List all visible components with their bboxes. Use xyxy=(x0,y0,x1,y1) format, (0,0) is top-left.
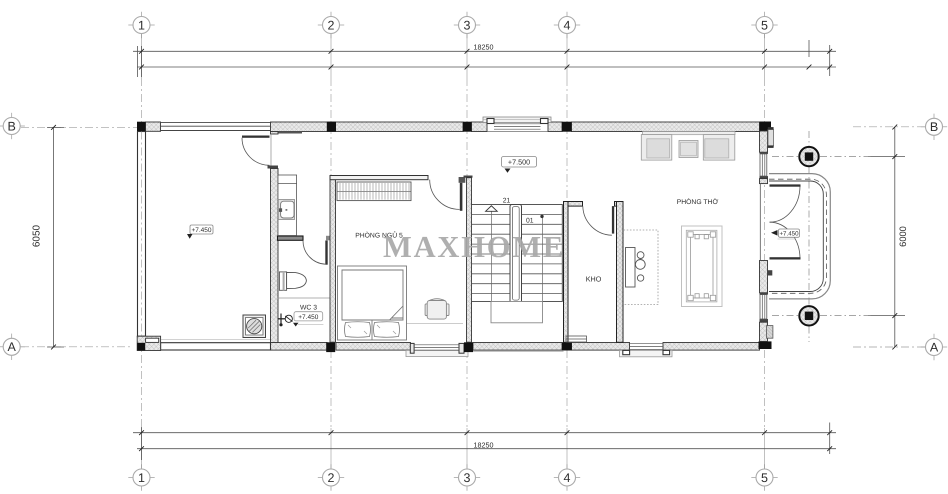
svg-text:B: B xyxy=(8,119,16,133)
svg-text:5: 5 xyxy=(761,471,768,485)
svg-text:21: 21 xyxy=(503,197,511,204)
svg-text:1: 1 xyxy=(138,471,145,485)
svg-text:+7.500: +7.500 xyxy=(508,158,530,167)
svg-text:5: 5 xyxy=(761,18,768,32)
svg-text:PHÒNG THỜ: PHÒNG THỜ xyxy=(677,198,719,206)
svg-text:4: 4 xyxy=(564,18,571,32)
svg-text:WC 3: WC 3 xyxy=(300,304,317,311)
svg-text:2: 2 xyxy=(328,471,335,485)
svg-text:4: 4 xyxy=(564,471,571,485)
svg-text:1: 1 xyxy=(138,18,145,32)
svg-text:+7.450: +7.450 xyxy=(298,314,318,321)
svg-text:6000: 6000 xyxy=(898,226,908,247)
svg-text:3: 3 xyxy=(464,471,471,485)
svg-text:18250: 18250 xyxy=(474,43,494,52)
svg-text:A: A xyxy=(930,340,939,354)
svg-text:3: 3 xyxy=(464,18,471,32)
svg-text:6050: 6050 xyxy=(32,224,43,247)
svg-text:B: B xyxy=(930,120,938,134)
svg-text:KHO: KHO xyxy=(586,275,602,284)
svg-text:01: 01 xyxy=(526,218,534,225)
svg-text:18250: 18250 xyxy=(474,441,494,450)
svg-text:MAXHOME: MAXHOME xyxy=(383,230,565,264)
svg-text:+7.450: +7.450 xyxy=(779,231,799,238)
svg-text:A: A xyxy=(8,340,17,354)
svg-text:+7.450: +7.450 xyxy=(191,227,211,234)
svg-text:2: 2 xyxy=(328,18,335,32)
